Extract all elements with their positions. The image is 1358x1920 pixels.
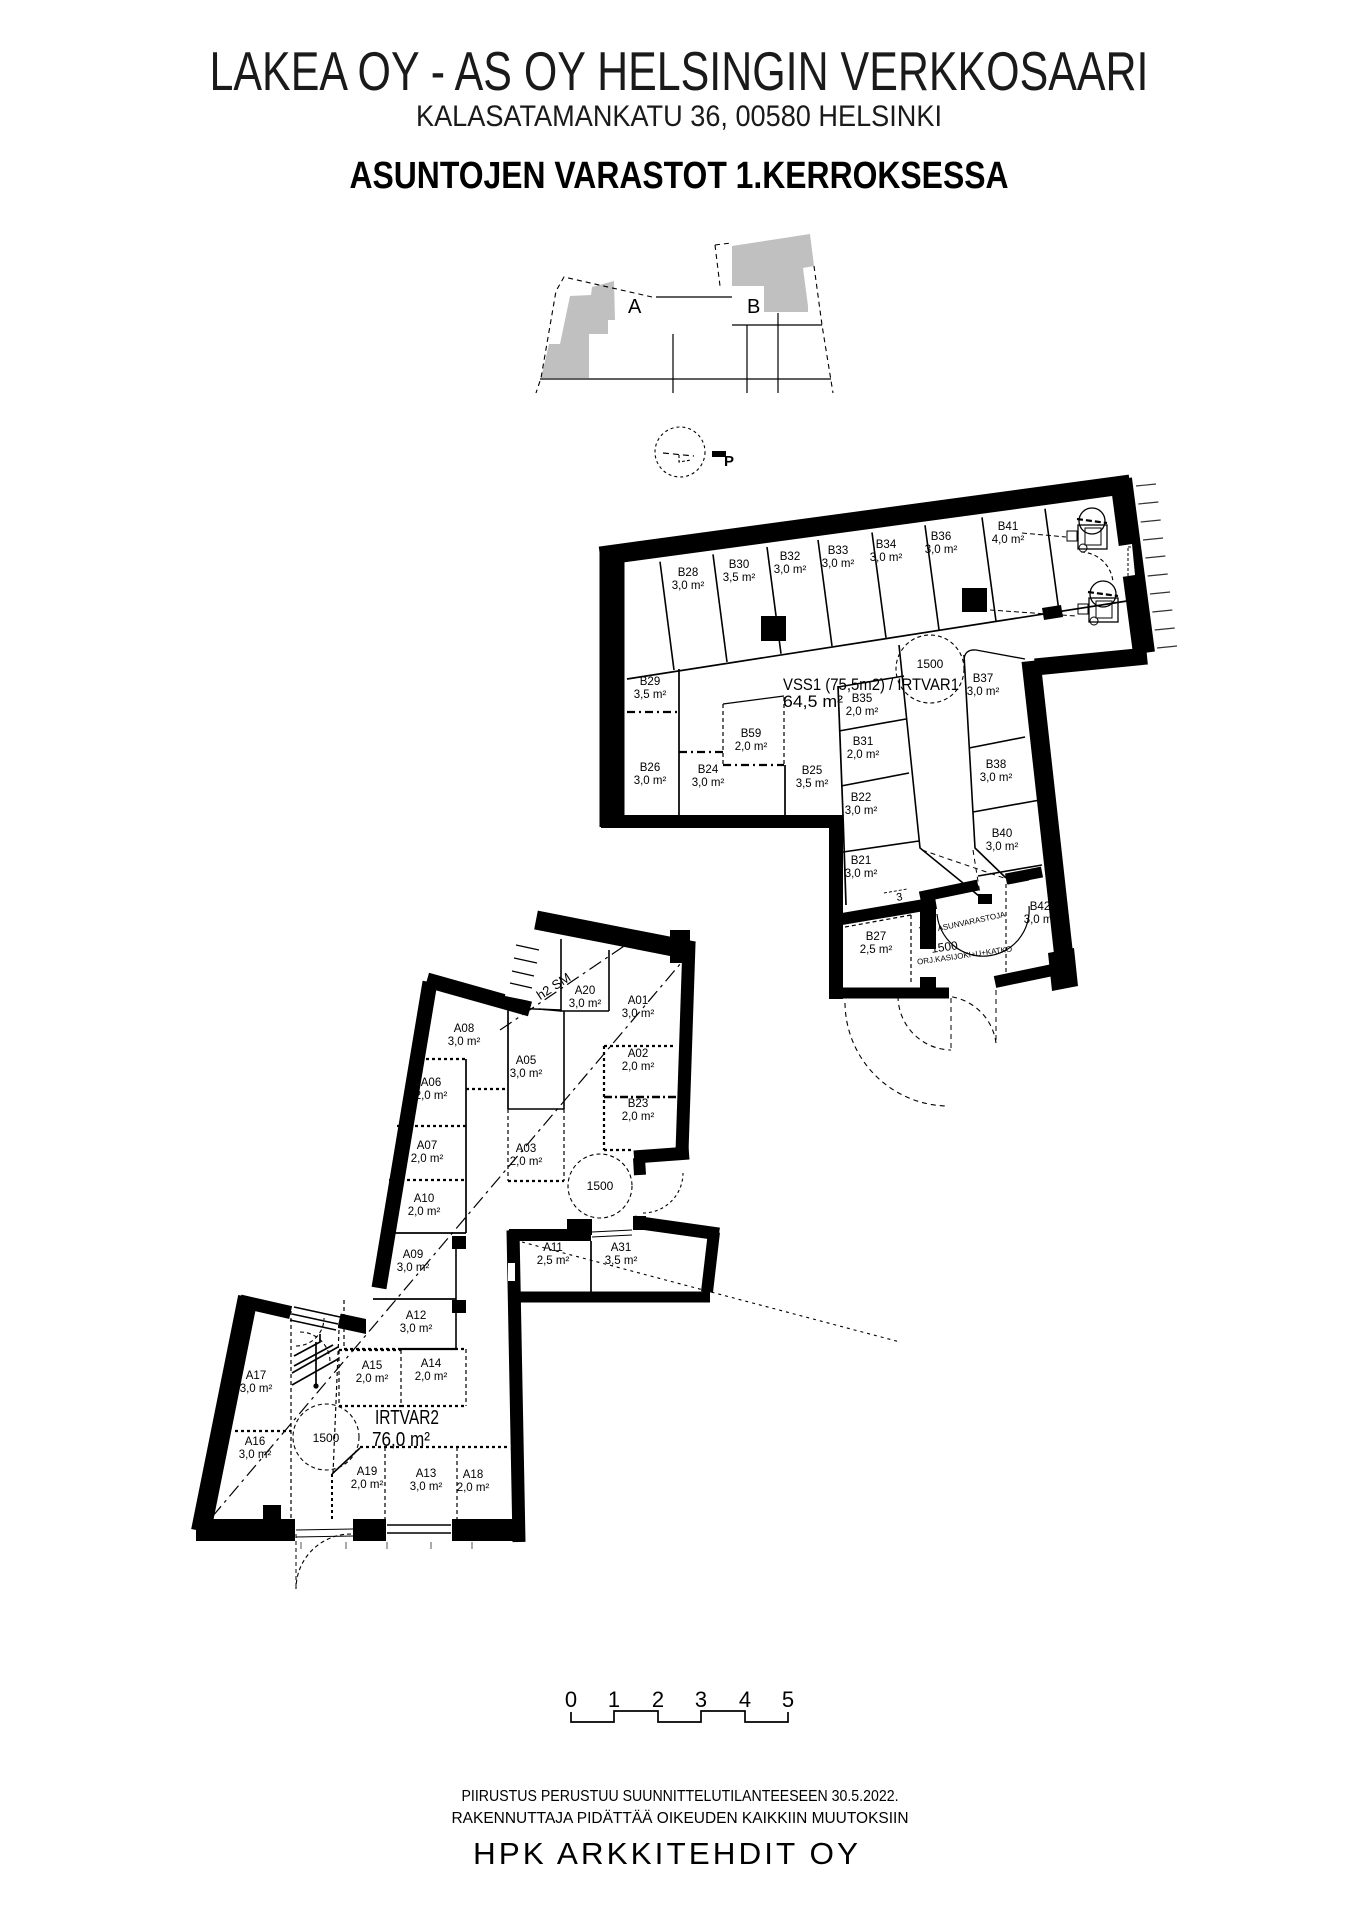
svg-text:KALASATAMANKATU 36, 00580 HELS: KALASATAMANKATU 36, 00580 HELSINKI (416, 100, 942, 133)
svg-text:ASUNTOJEN VARASTOT 1.KERROKSES: ASUNTOJEN VARASTOT 1.KERROKSESSA (350, 155, 1009, 197)
svg-text:0: 0 (565, 1687, 577, 1712)
svg-text:5: 5 (782, 1687, 794, 1712)
svg-text:1500: 1500 (917, 657, 944, 671)
svg-text:B: B (747, 296, 760, 318)
svg-text:1: 1 (608, 1687, 620, 1712)
svg-text:LAKEA OY - AS OY HELSINGIN VER: LAKEA OY - AS OY HELSINGIN VERKKOSAARI (210, 40, 1149, 102)
svg-text:4: 4 (739, 1687, 751, 1712)
svg-text:1500: 1500 (587, 1179, 614, 1193)
svg-text:3: 3 (695, 1687, 707, 1712)
svg-text:RAKENNUTTAJA PIDÄTTÄÄ OIKEUDEN: RAKENNUTTAJA PIDÄTTÄÄ OIKEUDEN KAIKKIIN … (452, 1809, 909, 1827)
svg-text:A: A (628, 296, 642, 318)
svg-text:PIIRUSTUS PERUSTUU SUUNNITTELU: PIIRUSTUS PERUSTUU SUUNNITTELUTILANTEESE… (462, 1788, 899, 1805)
svg-text:64,5 m²: 64,5 m² (783, 692, 843, 711)
svg-text:HPK ARKKITEHDIT OY: HPK ARKKITEHDIT OY (473, 1836, 861, 1871)
svg-text:IRTVAR2: IRTVAR2 (375, 1407, 439, 1429)
svg-text:P: P (724, 453, 734, 470)
svg-text:76,0 m²: 76,0 m² (372, 1429, 430, 1451)
svg-text:2: 2 (652, 1687, 664, 1712)
svg-text:1500: 1500 (313, 1431, 340, 1445)
